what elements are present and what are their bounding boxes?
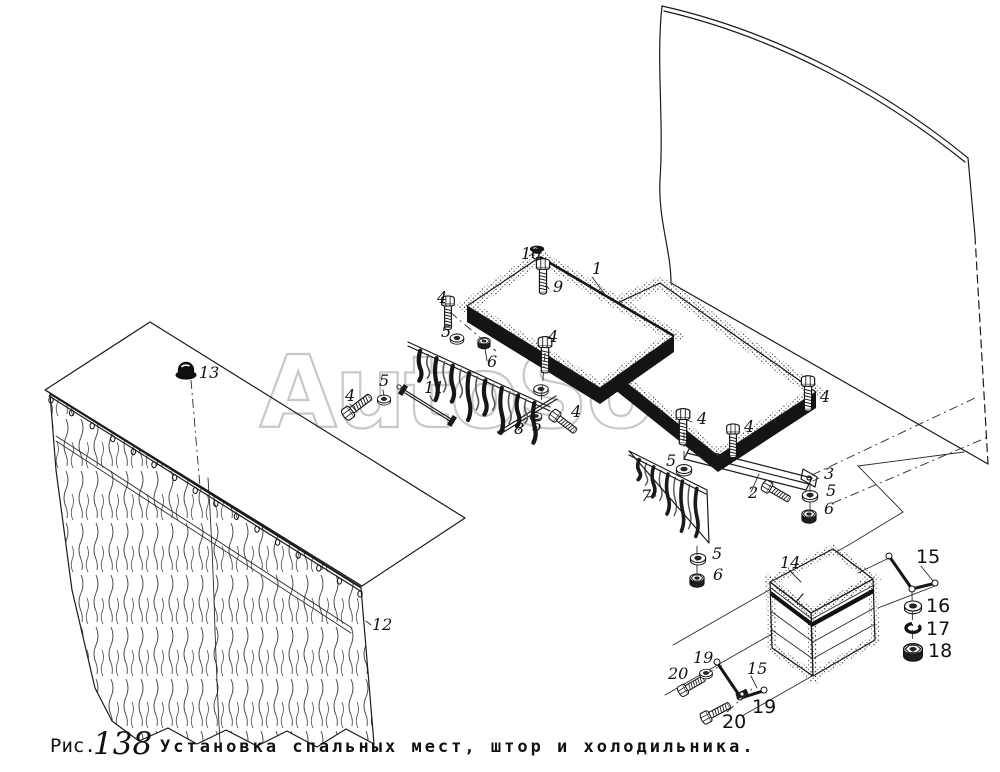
part-label-4: 4 <box>570 402 581 421</box>
part-label-4: 4 <box>436 288 447 307</box>
part-label-19: 19 <box>752 696 776 718</box>
part-label-19: 19 <box>693 648 713 667</box>
figure-title: Установка спальных мест, штор и холодиль… <box>160 737 756 757</box>
part-label-17: 17 <box>926 618 950 640</box>
part-label-10: 10 <box>521 244 541 263</box>
washer-5-c <box>534 385 548 396</box>
figure-number: 138 <box>93 726 152 762</box>
nut-6-c <box>802 510 816 523</box>
washer-5-e <box>676 465 691 477</box>
part-label-4: 4 <box>819 387 830 406</box>
part-label-12: 12 <box>372 615 392 634</box>
parts-diagram-page: AutoSoft <box>0 0 1000 772</box>
part-label-11: 11 <box>424 378 444 397</box>
part-label-4: 4 <box>547 327 558 346</box>
part-label-5: 5 <box>379 371 389 390</box>
part-label-6: 6 <box>824 499 834 518</box>
part-label-20: 20 <box>722 711 746 733</box>
part-label-18: 18 <box>928 640 952 662</box>
washer-16 <box>905 601 922 614</box>
part-label-6: 6 <box>487 352 497 371</box>
part-label-5: 5 <box>826 481 836 500</box>
part-label-8: 8 <box>514 419 524 438</box>
washer-5-a <box>450 334 464 344</box>
part-label-5: 5 <box>532 416 542 435</box>
part-label-9: 9 <box>553 277 563 296</box>
figure-drawing: AutoSoft <box>0 0 1000 772</box>
part-label-1: 1 <box>592 259 602 278</box>
part-label-2: 2 <box>747 483 758 502</box>
part-label-5: 5 <box>712 544 722 563</box>
part-label-4: 4 <box>344 386 355 405</box>
part-label-6: 6 <box>713 565 723 584</box>
part-label-5: 5 <box>666 451 676 470</box>
part-label-4: 4 <box>696 409 707 428</box>
figure-label-prefix: Рис. <box>50 735 96 757</box>
part-label-7: 7 <box>641 486 652 505</box>
part-label-20: 20 <box>667 664 688 683</box>
part-label-5: 5 <box>441 322 451 341</box>
part-label-14: 14 <box>780 553 800 572</box>
washer-5-f <box>690 554 705 566</box>
part-label-15: 15 <box>916 546 940 568</box>
washer-5-b <box>377 395 390 405</box>
part-label-4: 4 <box>743 417 754 436</box>
nut-6-a <box>478 338 490 349</box>
part-label-16: 16 <box>926 595 950 617</box>
part-label-13: 13 <box>199 363 219 382</box>
part-label-15: 15 <box>747 659 767 678</box>
curtain-knob-13 <box>176 362 197 380</box>
